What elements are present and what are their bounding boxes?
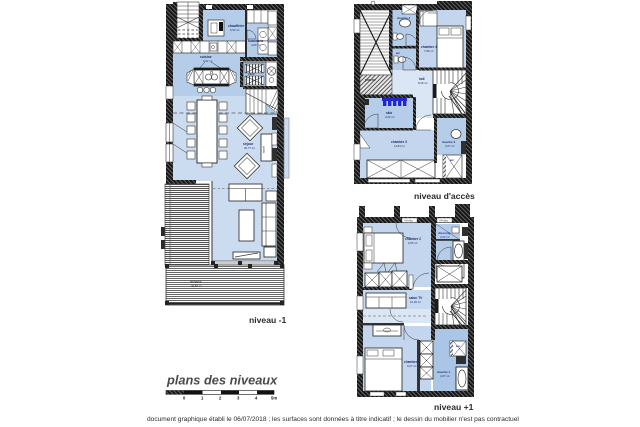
svg-text:8,09 m²: 8,09 m² [418, 81, 428, 85]
svg-text:11,84 m²: 11,84 m² [394, 144, 405, 148]
svg-text:poêle: poêle [262, 146, 266, 154]
svg-text:10,00 m²: 10,00 m² [410, 300, 421, 304]
svg-text:4,67 m²: 4,67 m² [440, 374, 450, 378]
svg-text:7,89 m²: 7,89 m² [424, 49, 434, 53]
svg-text:5m: 5m [271, 396, 277, 401]
svg-text:wc: wc [395, 51, 400, 55]
svg-text:niveau -1: niveau -1 [249, 315, 286, 325]
svg-text:40,77 m²: 40,77 m² [244, 146, 255, 150]
svg-text:douche 4: douche 4 [397, 16, 411, 20]
svg-text:niveau d'accès: niveau d'accès [414, 191, 475, 201]
svg-text:wc: wc [455, 344, 460, 348]
svg-text:document graphique établi le 0: document graphique établi le 06/07/2018 … [147, 416, 519, 423]
svg-text:wc: wc [449, 158, 454, 162]
svg-text:4,02 m²: 4,02 m² [385, 115, 395, 119]
svg-text:6,93 m²: 6,93 m² [230, 28, 240, 32]
svg-text:9,05 m²: 9,05 m² [408, 241, 418, 245]
svg-text:plans des niveaux: plans des niveaux [166, 373, 278, 388]
svg-text:39,86 m²: 39,86 m² [191, 284, 202, 288]
svg-text:porche: porche [365, 78, 376, 82]
svg-text:4,80 m²: 4,80 m² [251, 43, 261, 47]
svg-text:VH élec: VH élec [439, 219, 449, 223]
svg-text:niveau +1: niveau +1 [434, 402, 474, 412]
svg-text:9,67 m²: 9,67 m² [407, 364, 417, 368]
svg-text:4,03 m²: 4,03 m² [440, 235, 450, 239]
svg-text:cave: cave [248, 72, 255, 76]
svg-text:4,07 m²: 4,07 m² [445, 144, 455, 148]
svg-text:VH élec: VH élec [404, 219, 414, 223]
